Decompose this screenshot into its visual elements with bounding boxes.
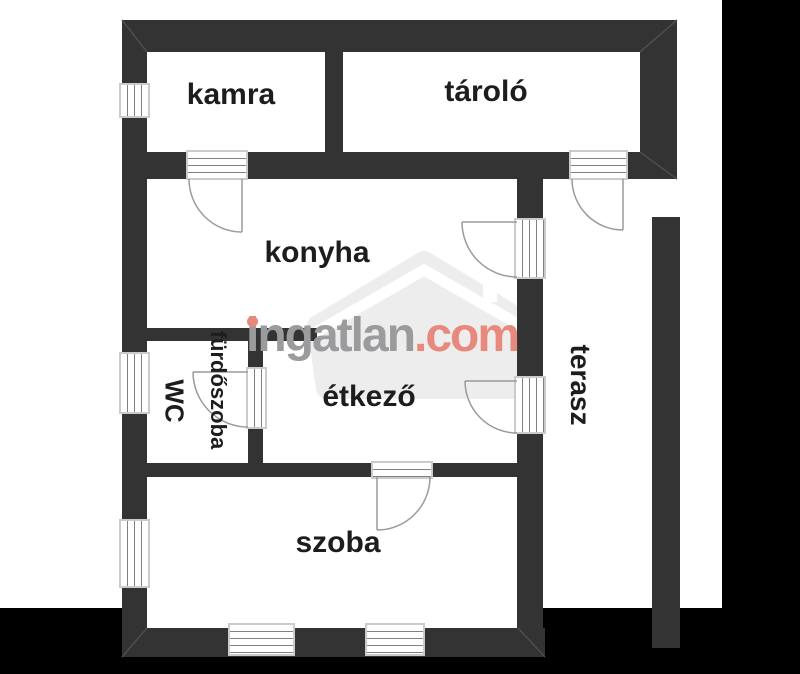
wall <box>517 278 543 378</box>
room-label-wc: WC <box>159 379 190 422</box>
watermark-brand-name: ingatlan <box>246 309 414 362</box>
watermark-brand-tld: .com <box>414 309 518 362</box>
watermark-i-dot <box>247 316 258 327</box>
door-frame <box>514 376 546 434</box>
wall <box>122 628 545 657</box>
floorplan-canvas: kamra tároló konyha WC fürdőszoba étkező… <box>0 0 800 674</box>
wall <box>517 179 543 218</box>
room-label-kamra: kamra <box>187 78 275 112</box>
wall <box>433 463 543 477</box>
room-label-terasz: terasz <box>564 345 596 426</box>
door-frame <box>371 461 433 479</box>
wall <box>627 152 677 179</box>
wall <box>122 463 373 477</box>
window <box>119 83 150 118</box>
door-frame <box>514 218 546 279</box>
door-frame <box>186 150 248 180</box>
wall <box>652 217 680 648</box>
wall <box>122 20 677 52</box>
room-label-konyha: konyha <box>264 236 369 270</box>
window <box>365 623 425 656</box>
wall <box>147 152 187 179</box>
watermark-text: ingatlan.com <box>246 312 518 360</box>
room-label-tarolo: tároló <box>444 75 527 109</box>
door-frame <box>569 150 628 180</box>
window <box>119 352 150 414</box>
wall <box>247 152 570 179</box>
room-label-furdoszoba: fürdőszoba <box>205 331 231 450</box>
room-label-etkezo: étkező <box>322 380 415 414</box>
window <box>119 519 150 588</box>
room-label-szoba: szoba <box>295 526 380 560</box>
door-frame <box>246 367 267 429</box>
window <box>228 623 295 656</box>
